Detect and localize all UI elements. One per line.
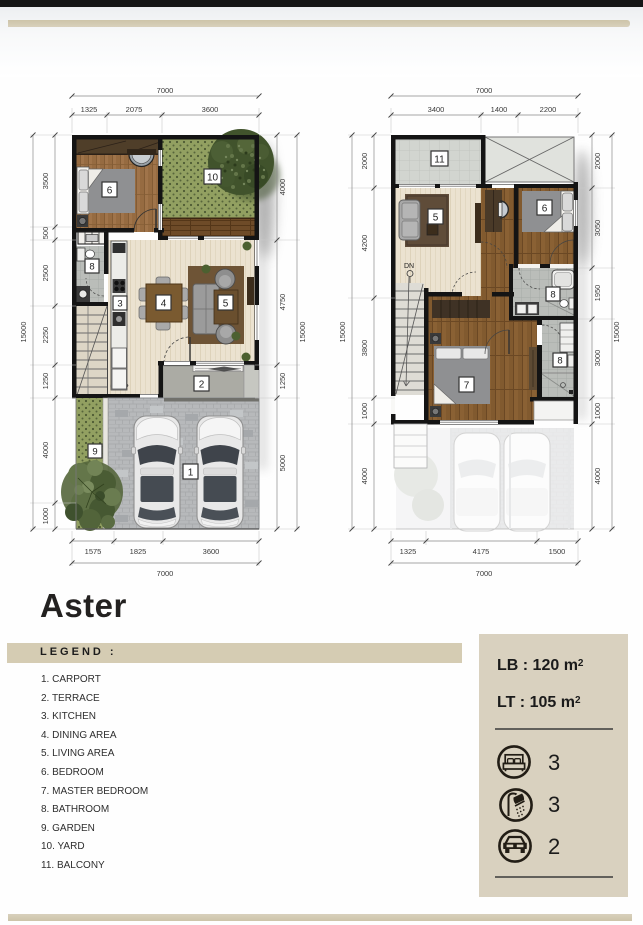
svg-text:1400: 1400 [491,105,508,114]
svg-text:4000: 4000 [41,442,50,459]
svg-text:3000: 3000 [593,350,602,367]
svg-text:2200: 2200 [540,105,557,114]
svg-text:15000: 15000 [19,322,28,343]
svg-text:7000: 7000 [157,569,174,578]
svg-text:7000: 7000 [157,86,174,95]
svg-text:4200: 4200 [360,235,369,252]
svg-text:15000: 15000 [298,322,307,343]
svg-text:1325: 1325 [81,105,98,114]
svg-text:1: 1 [188,468,194,479]
svg-text:4750: 4750 [278,294,287,311]
svg-text:3600: 3600 [202,105,219,114]
svg-text:3500: 3500 [41,173,50,190]
svg-text:3600: 3600 [203,547,220,556]
svg-text:2500: 2500 [41,265,50,282]
svg-text:11: 11 [434,155,445,166]
svg-text:4000: 4000 [360,468,369,485]
svg-text:3400: 3400 [428,105,445,114]
svg-text:DN: DN [404,263,414,270]
svg-text:7000: 7000 [476,569,493,578]
svg-text:4: 4 [161,299,167,310]
svg-text:8: 8 [89,262,94,273]
svg-text:2000: 2000 [360,153,369,170]
svg-text:3050: 3050 [593,220,602,237]
svg-text:4000: 4000 [593,468,602,485]
svg-text:5: 5 [223,299,229,310]
svg-text:15000: 15000 [612,322,621,343]
svg-text:10: 10 [207,173,219,184]
svg-text:1950: 1950 [593,285,602,302]
svg-text:1575: 1575 [85,547,102,556]
svg-text:4000: 4000 [278,179,287,196]
svg-text:7: 7 [464,381,470,392]
svg-text:1825: 1825 [130,547,147,556]
svg-text:7000: 7000 [476,86,493,95]
svg-text:1500: 1500 [549,547,566,556]
svg-text:2250: 2250 [41,327,50,344]
svg-text:2075: 2075 [126,105,143,114]
svg-text:6: 6 [542,204,548,215]
svg-text:1250: 1250 [41,373,50,390]
svg-text:2000: 2000 [593,153,602,170]
svg-text:15000: 15000 [338,322,347,343]
svg-text:3800: 3800 [360,340,369,357]
svg-text:6: 6 [107,186,113,197]
svg-text:1250: 1250 [278,373,287,390]
svg-text:500: 500 [41,227,50,240]
svg-text:2: 2 [199,380,205,391]
svg-text:4175: 4175 [473,547,490,556]
svg-text:8: 8 [550,290,555,301]
svg-text:9: 9 [92,447,97,458]
svg-text:1000: 1000 [593,403,602,420]
svg-text:5000: 5000 [278,455,287,472]
svg-text:1325: 1325 [400,547,417,556]
svg-text:1000: 1000 [360,403,369,420]
svg-text:3: 3 [117,299,122,310]
svg-text:1000: 1000 [41,508,50,525]
svg-text:8: 8 [557,356,562,367]
svg-text:5: 5 [433,213,439,224]
